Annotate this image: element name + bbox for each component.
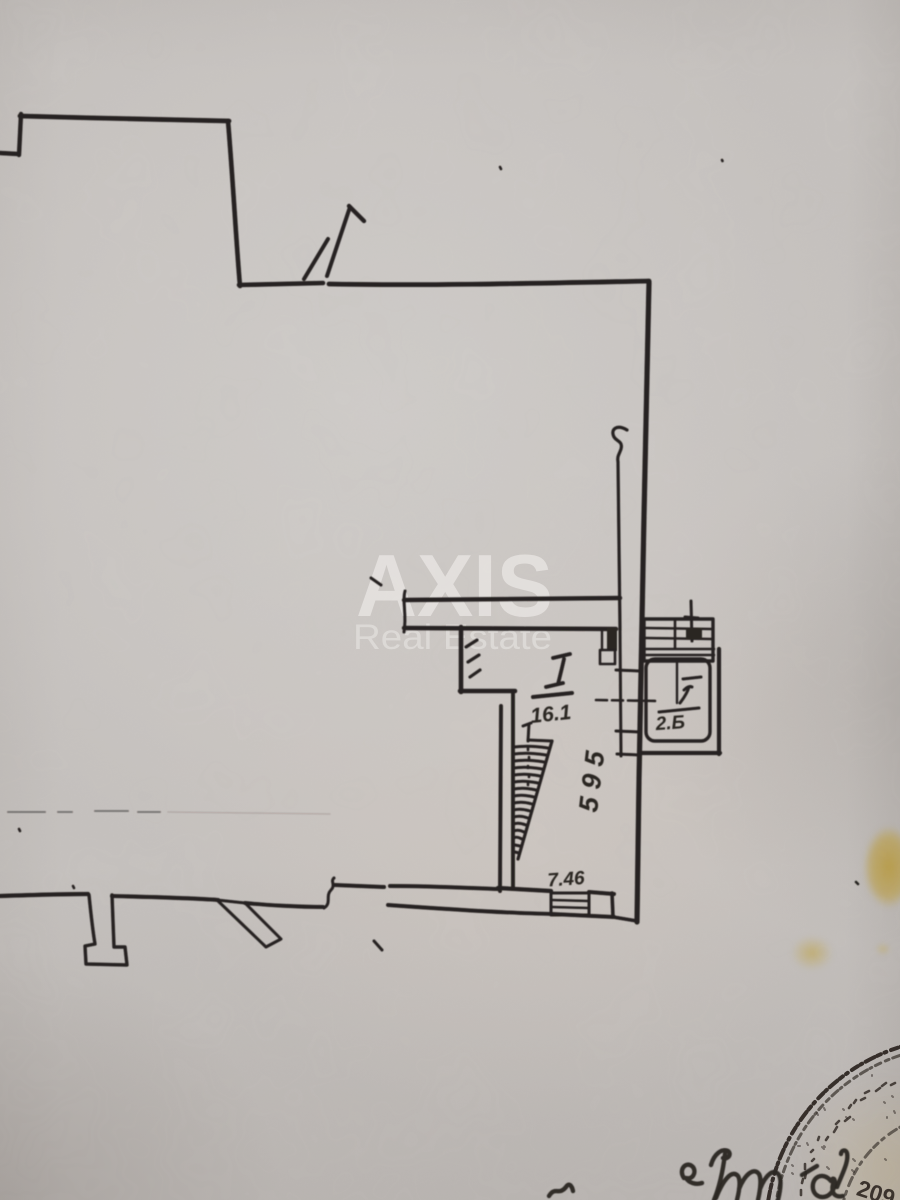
svg-text:Real Estate: Real Estate [353,618,552,657]
svg-text:595: 595 [573,742,611,814]
svg-text:2.Б: 2.Б [654,712,686,735]
svg-text:7.46: 7.46 [547,868,586,892]
svg-text:16.1: 16.1 [529,701,572,728]
svg-text:209: 209 [854,1175,899,1200]
